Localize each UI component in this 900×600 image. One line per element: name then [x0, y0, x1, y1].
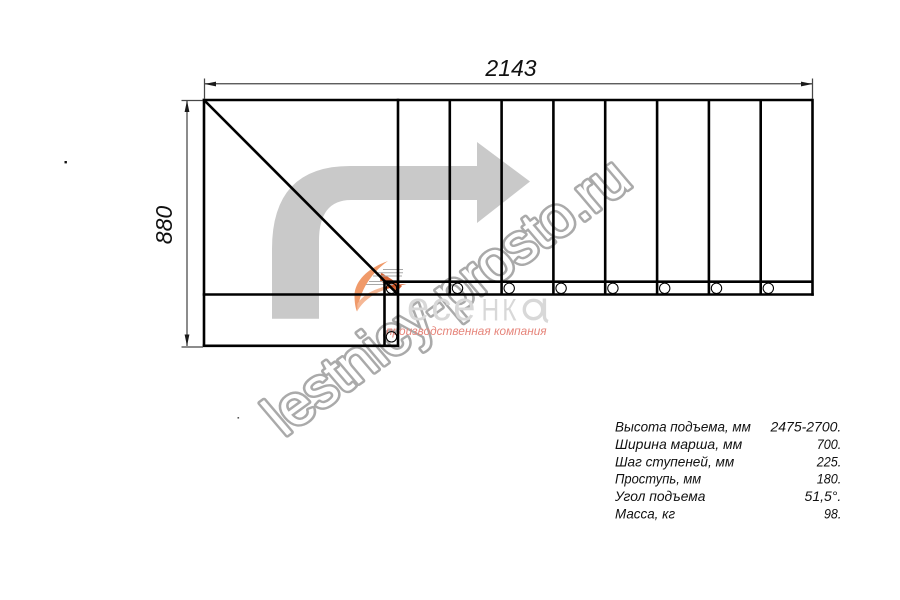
svg-text:2475-2700.: 2475-2700.	[769, 419, 841, 435]
svg-text:2143: 2143	[484, 55, 536, 81]
svg-text:51,5°.: 51,5°.	[805, 488, 842, 504]
svg-text:Высота подъема, мм: Высота подъема, мм	[615, 419, 751, 434]
svg-text:225.: 225.	[816, 454, 841, 470]
svg-text:есе: есе	[407, 285, 478, 329]
svg-text:Угол подъема: Угол подъема	[614, 488, 706, 504]
svg-text:880: 880	[151, 206, 177, 245]
svg-text:Шаг ступеней, мм: Шаг ступеней, мм	[615, 453, 735, 469]
svg-text:700.: 700.	[817, 436, 841, 452]
svg-text:180.: 180.	[817, 471, 841, 487]
svg-text:Масса, кг: Масса, кг	[615, 506, 675, 521]
svg-text:98.: 98.	[824, 506, 841, 522]
svg-text:производственная компания: производственная компания	[386, 324, 547, 338]
svg-text:НК: НК	[482, 293, 520, 328]
svg-text:Ширина марша, мм: Ширина марша, мм	[615, 436, 743, 452]
svg-text:Проступь, мм: Проступь, мм	[615, 471, 701, 487]
